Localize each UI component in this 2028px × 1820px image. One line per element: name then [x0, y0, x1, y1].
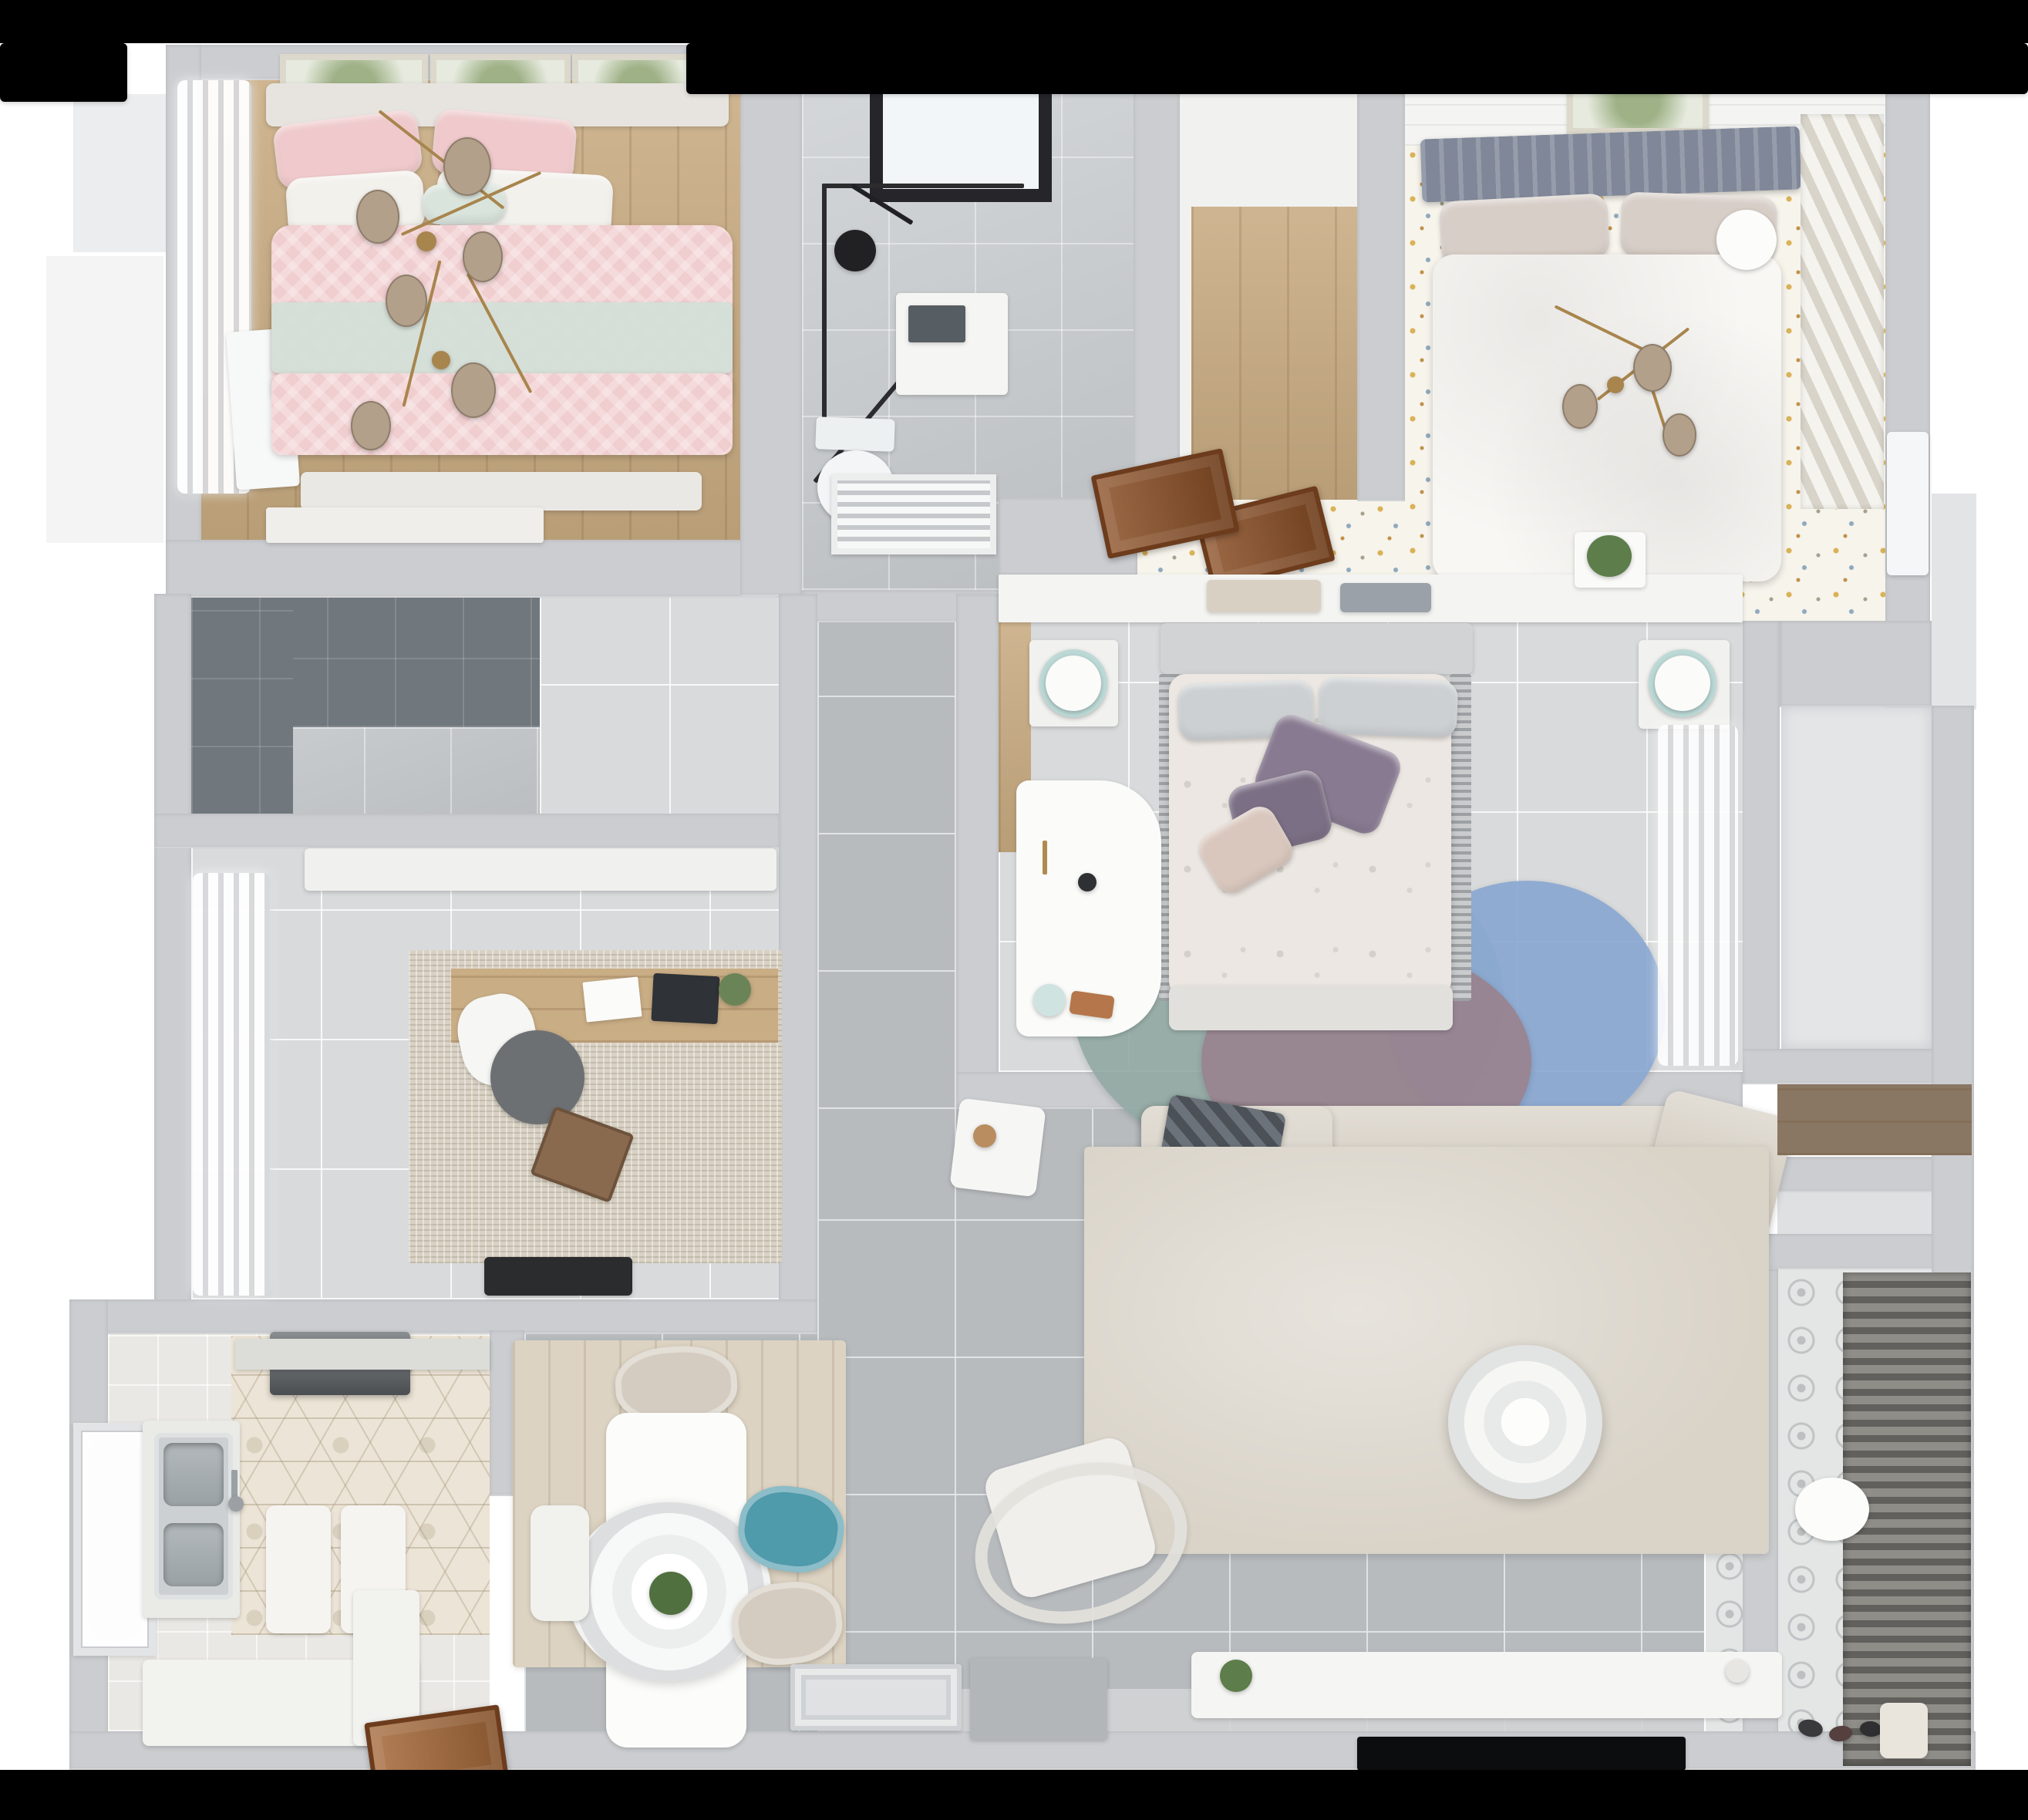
study-notepad — [582, 976, 642, 1022]
master-lamp — [1046, 656, 1101, 711]
wall — [1885, 45, 1930, 708]
shower-glass-edge — [822, 184, 827, 436]
balcony-basket — [1880, 1703, 1928, 1758]
study-plant — [719, 973, 751, 1006]
kitchen-board — [266, 1505, 331, 1633]
render-crop-black-left — [0, 43, 127, 102]
letterbox-bar-bottom — [0, 1770, 2028, 1820]
desk-pen — [1043, 841, 1047, 875]
coffee-table — [1448, 1345, 1602, 1499]
letterbox-bar-top — [0, 0, 2028, 43]
floorplan-render — [0, 0, 2028, 1820]
desk-speaker — [1078, 873, 1097, 891]
chandelier-hub — [416, 231, 436, 251]
wall — [69, 1299, 817, 1334]
bedroom2-foot-bench — [301, 472, 702, 511]
wall — [154, 594, 191, 1309]
master-pillow — [1318, 676, 1458, 738]
wall — [166, 540, 779, 598]
bedroom2-duvet-lower — [271, 373, 733, 455]
chandelier-hub — [432, 351, 450, 369]
entry-mat-ornate — [790, 1664, 962, 1731]
desk-teal-cup — [1033, 984, 1066, 1016]
render-crop-black-right — [686, 43, 2028, 94]
bedroom1-headboard — [1420, 126, 1802, 202]
chandelier-bulb — [451, 362, 496, 418]
hallway-vent-grille — [831, 474, 996, 554]
study-curtain — [193, 873, 270, 1296]
wall — [779, 594, 817, 1309]
living-rug — [1084, 1147, 1769, 1554]
bench-vase — [1726, 1660, 1749, 1683]
wall — [1134, 45, 1180, 501]
wall — [154, 814, 780, 848]
wall — [740, 45, 802, 596]
apartment-plan — [0, 0, 2028, 1820]
kitchen-double-sink — [154, 1433, 233, 1599]
bedroom2-wardrobe-front — [266, 507, 544, 543]
bg-slab-right — [1932, 494, 1976, 709]
chandelier-bulb — [386, 275, 427, 327]
dining-centerpiece-plant — [649, 1572, 692, 1615]
wall — [956, 594, 999, 1109]
wall — [1780, 621, 1932, 707]
tv-panel — [1357, 1737, 1686, 1771]
balcony-light — [1795, 1478, 1869, 1541]
dining-chair-white — [531, 1505, 589, 1621]
corridor-floor — [817, 621, 956, 1109]
entry-mat-gray — [970, 1658, 1107, 1740]
study-doormat — [484, 1257, 632, 1296]
shaft-void — [1781, 706, 1932, 1049]
side-table-decor — [973, 1124, 996, 1148]
bench-plant — [1220, 1660, 1252, 1692]
shelf-plant — [1587, 535, 1632, 577]
study-laptop — [651, 973, 719, 1024]
utility-gap-floor — [540, 598, 779, 815]
shelf-book — [1207, 580, 1321, 612]
chandelier-bulb — [1633, 344, 1672, 392]
bedroom1-louver-closet — [1801, 114, 1884, 509]
bathroom1-cabinet-screen — [908, 305, 965, 342]
tv-bench — [1191, 1652, 1782, 1718]
study-office-chair — [490, 1030, 584, 1124]
study-top-shelf — [305, 848, 777, 891]
storage-wood-shelf — [1777, 1084, 1972, 1155]
master-curtain — [1658, 725, 1738, 1066]
living-side-table — [949, 1098, 1046, 1198]
chandelier-bulb — [351, 401, 391, 450]
chandelier-bulb — [1662, 413, 1696, 457]
bg-slab-left — [46, 256, 163, 543]
chandelier-hub — [1607, 376, 1624, 393]
chandelier-bulb — [356, 190, 399, 244]
chandelier-bulb — [1562, 384, 1598, 429]
bathroom2-dark-left — [191, 598, 293, 815]
master-lamp — [1655, 656, 1710, 711]
toilet-tank — [815, 416, 894, 452]
master-headboard — [1161, 623, 1473, 674]
shelf-book — [1340, 583, 1431, 612]
shower-head — [834, 230, 876, 271]
bedroom1-window-gap — [1887, 432, 1929, 575]
master-bed-foot — [1169, 986, 1453, 1030]
bedroom1-ball-light — [1716, 210, 1777, 270]
chandelier-bulb — [443, 137, 491, 196]
kitchen-faucet-base — [228, 1496, 244, 1512]
kitchen-counter-top — [235, 1339, 490, 1370]
wall — [1357, 45, 1405, 501]
chandelier-bulb — [463, 231, 503, 282]
wall — [1743, 621, 1780, 1074]
